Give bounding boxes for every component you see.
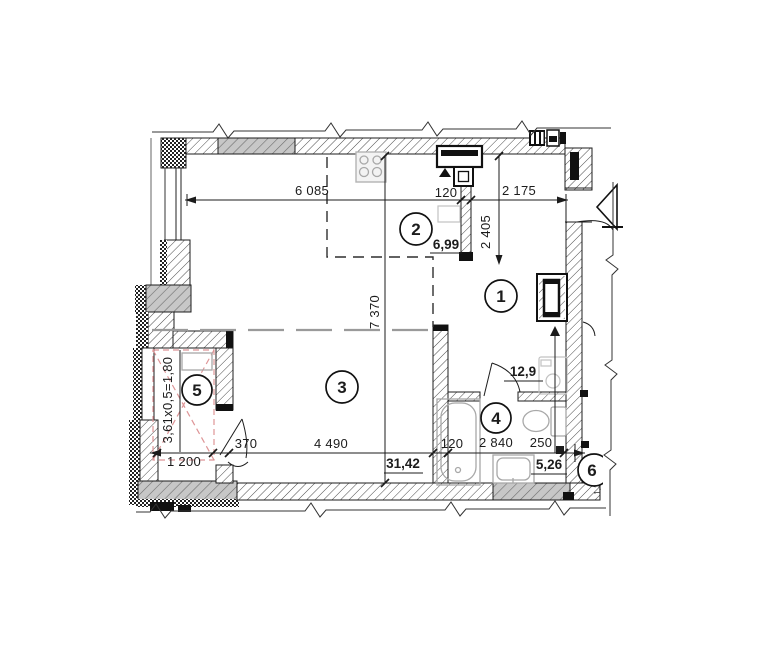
room-marker-2: 2 bbox=[400, 213, 432, 245]
dim-2840-label: 2 840 bbox=[479, 435, 513, 450]
area-room-4: 5,26 bbox=[536, 457, 563, 472]
kitchen-vent-shaft bbox=[437, 146, 482, 222]
room-6-number: 6 bbox=[587, 461, 596, 480]
dim-2175-label: 2 175 bbox=[502, 183, 536, 198]
zone-boundaries bbox=[152, 157, 433, 330]
area-room-5-formula: 3,61x0,5=1,80 bbox=[160, 357, 175, 444]
room-marker-4: 4 bbox=[481, 403, 511, 433]
hallway-riser-shaft bbox=[537, 274, 567, 321]
area-room-1: 12,9 bbox=[510, 364, 536, 379]
washing-machine bbox=[539, 357, 567, 394]
dim-370-label: 370 bbox=[235, 436, 258, 451]
floor-plan-canvas: 6 085 120 2 175 2 405 7 370 1 200 370 4 … bbox=[0, 0, 778, 650]
room-5-number: 5 bbox=[192, 381, 201, 400]
room-marker-5: 5 bbox=[182, 375, 212, 405]
room-3-number: 3 bbox=[337, 378, 346, 397]
dim-2405-label: 2 405 bbox=[478, 215, 493, 249]
dim-7370-label: 7 370 bbox=[367, 295, 382, 329]
room-marker-6: 6 bbox=[578, 454, 610, 486]
vent-grilles-top-right bbox=[529, 130, 566, 146]
room-marker-3: 3 bbox=[326, 371, 358, 403]
room-4-number: 4 bbox=[491, 409, 501, 428]
room-2-number: 2 bbox=[411, 220, 420, 239]
dim-250-label: 250 bbox=[530, 435, 553, 450]
room-marker-1: 1 bbox=[485, 280, 517, 312]
dim-6085-label: 6 085 bbox=[295, 183, 329, 198]
area-room-2: 6,99 bbox=[433, 237, 459, 252]
room-1-number: 1 bbox=[496, 287, 505, 306]
dim-4490-label: 4 490 bbox=[314, 436, 348, 451]
dim-120-bottom-label: 120 bbox=[441, 436, 464, 451]
dim-1200-label: 1 200 bbox=[167, 454, 201, 469]
sink bbox=[493, 455, 534, 483]
dim-120-top-label: 120 bbox=[435, 185, 458, 200]
stove-icon bbox=[356, 152, 386, 182]
floor-plan-page: 6 085 120 2 175 2 405 7 370 1 200 370 4 … bbox=[0, 0, 778, 650]
area-room-3: 31,42 bbox=[386, 456, 420, 471]
toilet bbox=[523, 407, 566, 436]
